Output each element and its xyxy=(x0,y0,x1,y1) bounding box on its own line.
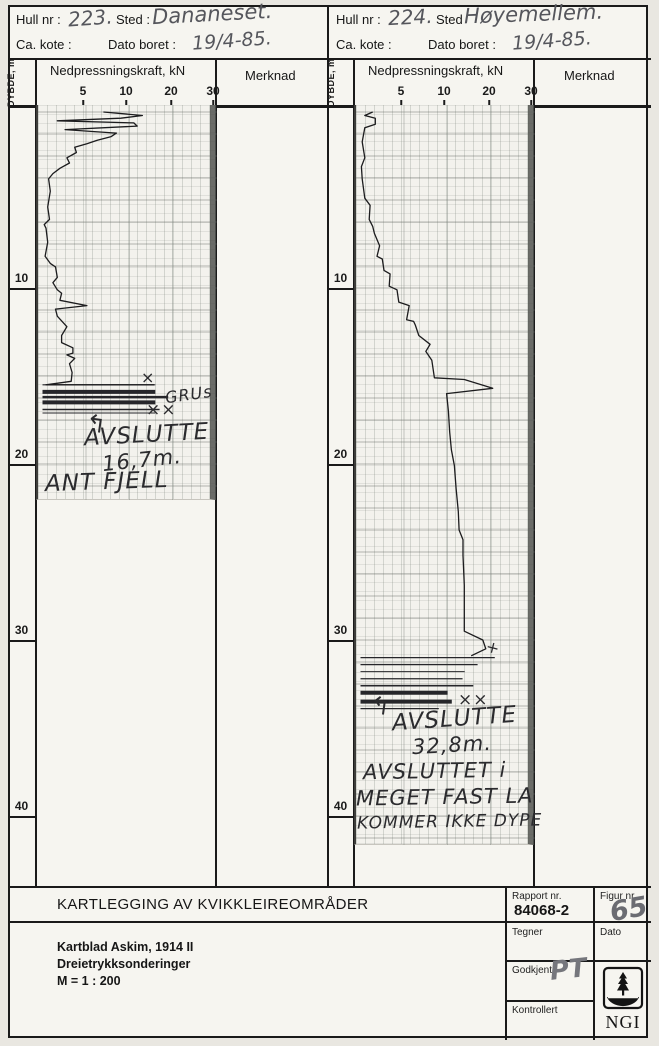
stop-note-left: ANT FJELL xyxy=(45,467,169,497)
force-axis-label-right: Nedpressningskraft, kN xyxy=(368,63,503,78)
force-tick-label: 20 xyxy=(482,84,495,98)
godkjent-label: Godkjent xyxy=(512,965,552,976)
depth-tick-label: 20 xyxy=(328,447,353,461)
sted-value-right: Høyemellem. xyxy=(464,0,604,28)
tegner-label: Tegner xyxy=(512,927,543,938)
stamp-left-line xyxy=(505,886,507,1040)
ngi-logo: NGI xyxy=(601,966,645,1036)
depth-tick-label: 20 xyxy=(8,447,35,461)
titleblock-inner-line xyxy=(8,921,651,923)
sted-label-left: Sted : xyxy=(116,12,150,27)
hull-nr-label-right: Hull nr : xyxy=(336,12,381,27)
sted-label-right: Sted xyxy=(436,12,463,27)
depth-tick-line xyxy=(328,288,353,290)
scale-line: M = 1 : 200 xyxy=(57,974,121,988)
depth-tick-line xyxy=(8,640,35,642)
force-ticks-right: 5102030 xyxy=(354,84,533,106)
depth-tick-line xyxy=(328,464,353,466)
depth-axis-label-right: DYBDE, m xyxy=(326,59,336,107)
depth-tick-line xyxy=(328,816,353,818)
depth-tick-line xyxy=(328,640,353,642)
force-ticks-left: 5102030 xyxy=(36,84,215,106)
stamp-mid-line xyxy=(593,886,595,1040)
scanned-sounding-log-page: Hull nr : 223. Sted : Dananeset. Ca. kot… xyxy=(0,0,659,1046)
arrow-mark-right: ↰ xyxy=(368,691,393,722)
force-tick-label: 20 xyxy=(164,84,177,98)
hull-nr-value-right: 224. xyxy=(387,4,433,30)
force-tick-label: 5 xyxy=(80,84,87,98)
report-title: KARTLEGGING AV KVIKKLEIREOMRÅDER xyxy=(57,896,369,913)
rapport-nr-label: Rapport nr. xyxy=(512,891,561,902)
x-mark-left: × xyxy=(141,368,155,387)
kontrollert-label: Kontrollert xyxy=(512,1005,558,1016)
depth-tick-label: 10 xyxy=(8,271,35,285)
depth-tick-label: 30 xyxy=(328,623,353,637)
hull-nr-value-left: 223. xyxy=(67,4,113,31)
force-axis-label-left: Nedpressningskraft, kN xyxy=(50,63,185,78)
force-tick-label: 30 xyxy=(206,84,219,98)
depth-tick-label: 30 xyxy=(8,623,35,637)
force-tick-label: 5 xyxy=(398,84,405,98)
kote-label-left: Ca. kote : xyxy=(16,37,72,52)
depth-tick-line xyxy=(8,816,35,818)
penetration-force-curve xyxy=(44,112,154,385)
dato-label-left: Dato boret : xyxy=(108,37,176,52)
rapport-nr-value: 84068-2 xyxy=(514,902,569,919)
merknad-label-left: Merknad xyxy=(245,68,296,83)
depth-ruler-right: 10203040 xyxy=(328,105,353,886)
stop-note3-right: KOMMER IKKE DYPE xyxy=(357,810,543,833)
map-sheet-line: Kartblad Askim, 1914 II xyxy=(57,940,193,954)
force-tick-label: 10 xyxy=(119,84,132,98)
figur-nr-value: 65 xyxy=(608,891,650,928)
force-tick-label: 30 xyxy=(524,84,537,98)
hull-nr-label-left: Hull nr : xyxy=(16,12,61,27)
depth-ruler-left: 10203040 xyxy=(8,105,35,886)
depth-tick-label: 40 xyxy=(328,799,353,813)
stop-note1-right: AVSLUTTET i xyxy=(363,758,507,784)
depth-tick-label: 40 xyxy=(8,799,35,813)
depth-tick-label: 10 xyxy=(328,271,353,285)
depth-tick-line xyxy=(8,288,35,290)
force-tick-label: 10 xyxy=(437,84,450,98)
stop-depth-right: 32,8m. xyxy=(411,731,492,759)
godkjent-signature: PT xyxy=(549,953,589,987)
method-line: Dreietrykksonderinger xyxy=(57,957,190,971)
titleblock-top-line xyxy=(8,886,651,888)
stop-note2-right: MEGET FAST LA xyxy=(356,783,534,810)
kote-label-right: Ca. kote : xyxy=(336,37,392,52)
xx-mark-left: ×× xyxy=(146,400,177,420)
merknad-label-right: Merknad xyxy=(564,68,615,83)
stamp-row3-line xyxy=(505,1000,593,1002)
depth-tick-line xyxy=(8,464,35,466)
dato-stamp-label: Dato xyxy=(600,927,621,938)
ngi-logo-text: NGI xyxy=(606,1012,641,1032)
depth-axis-label-left: DYBDE, m xyxy=(6,59,16,107)
dato-label-right: Dato boret : xyxy=(428,37,496,52)
